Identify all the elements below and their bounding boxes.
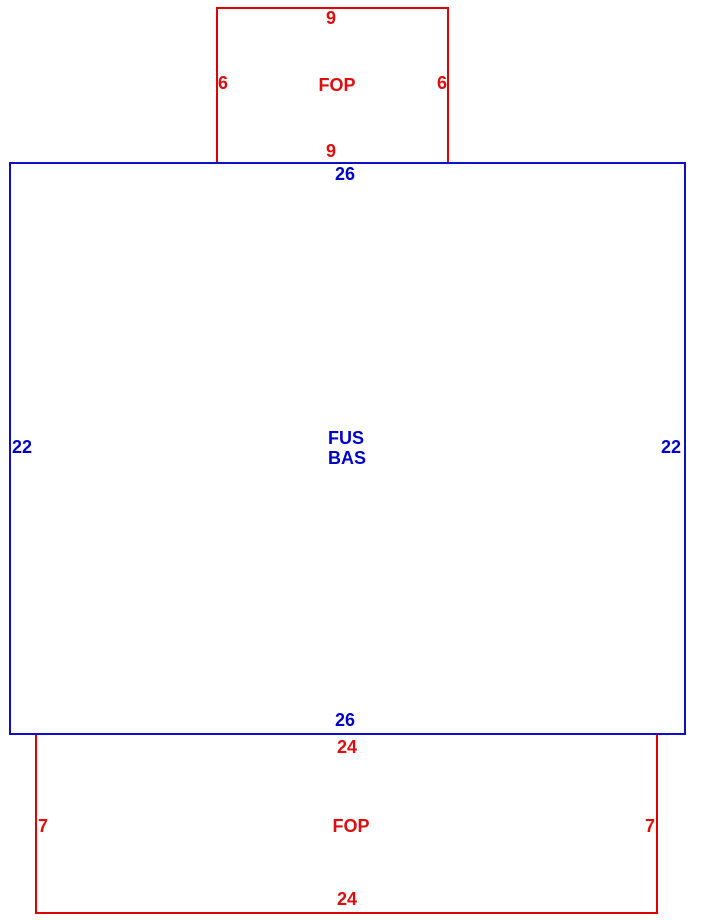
fop-bottom-label: FOP [332, 817, 369, 836]
fop-top-dim-bottom: 9 [326, 142, 336, 161]
fop-bottom-dim-top: 24 [337, 738, 357, 757]
fus-bas-dim-bottom: 26 [335, 711, 355, 730]
fus-bas-label-line2: BAS [328, 449, 366, 468]
sketch-canvas: 9 6 FOP 6 9 26 22 FUS BAS 22 26 24 7 FOP… [0, 0, 720, 920]
fus-bas-dim-right: 22 [661, 438, 681, 457]
fus-bas-label-line1: FUS [328, 429, 364, 448]
fop-bottom-dim-right: 7 [645, 817, 655, 836]
fop-top-label: FOP [318, 76, 355, 95]
fop-top-dim-top: 9 [326, 9, 336, 28]
fop-bottom-dim-left: 7 [38, 817, 48, 836]
fop-top-dim-right: 6 [437, 74, 447, 93]
fus-bas-dim-top: 26 [335, 165, 355, 184]
fop-top-dim-left: 6 [218, 74, 228, 93]
fop-bottom-dim-bottom: 24 [337, 890, 357, 909]
fus-bas-dim-left: 22 [12, 438, 32, 457]
